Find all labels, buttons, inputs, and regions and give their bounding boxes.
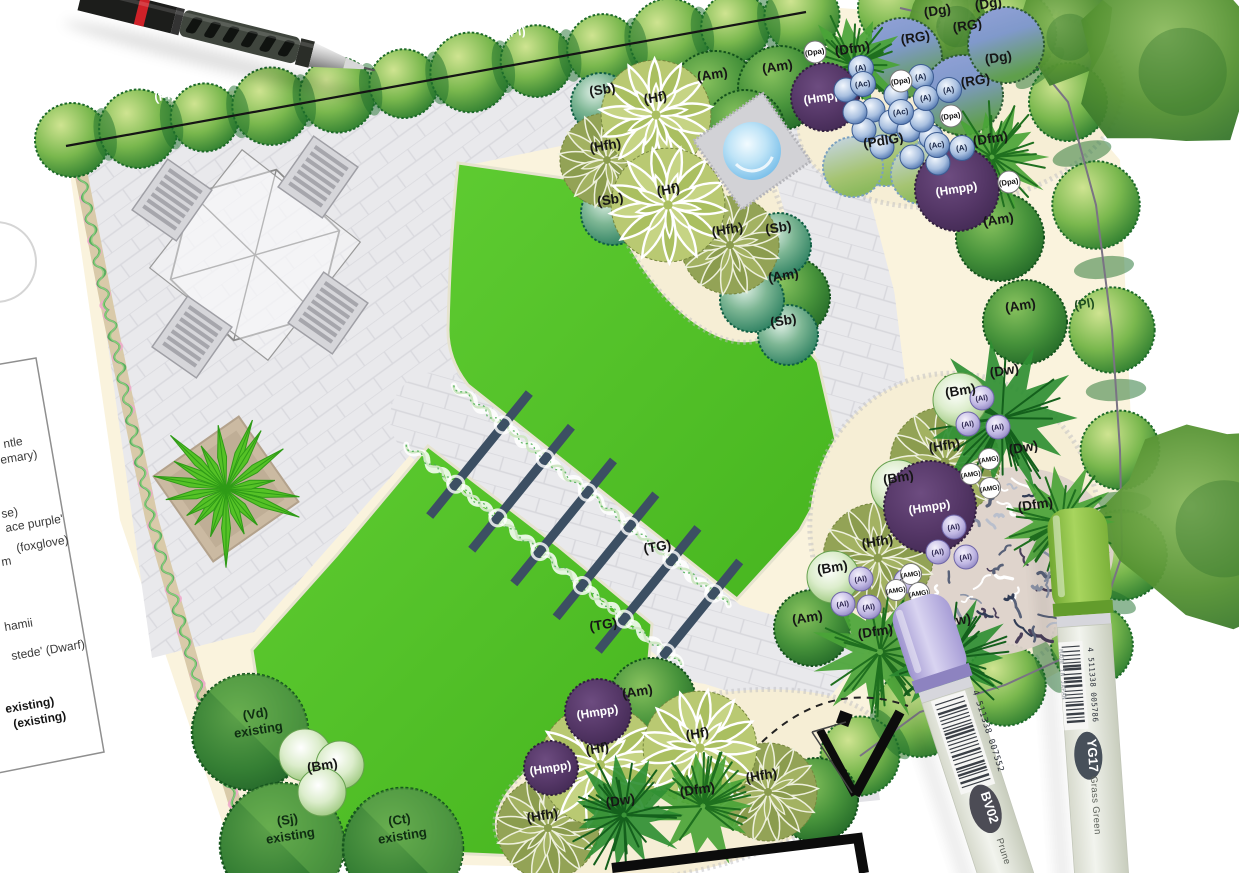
ball-plant-bm [298, 768, 346, 816]
plant-symbol [983, 280, 1067, 364]
garden-table-set [132, 136, 368, 378]
yg17-code-label: YG17 [1084, 738, 1101, 772]
legend-box [0, 358, 104, 810]
plant-label: (A) [942, 85, 955, 96]
plant-legend: ntleemary)se)ace purple'(foxglove)mhamii… [0, 222, 104, 810]
plant-label: (A) [919, 93, 932, 104]
garden-plan-photo: ntleemary)se)ace purple'(foxglove)mhamii… [0, 0, 1239, 873]
small-ball-plant [843, 100, 867, 124]
plant-label: (A) [914, 72, 927, 83]
garden-plan-canvas: ntleemary)se)ace purple'(foxglove)mhamii… [0, 0, 1239, 873]
plant-label: (A) [955, 143, 968, 154]
legend-symbol-circle [0, 222, 36, 302]
small-ball-plant [900, 145, 924, 169]
